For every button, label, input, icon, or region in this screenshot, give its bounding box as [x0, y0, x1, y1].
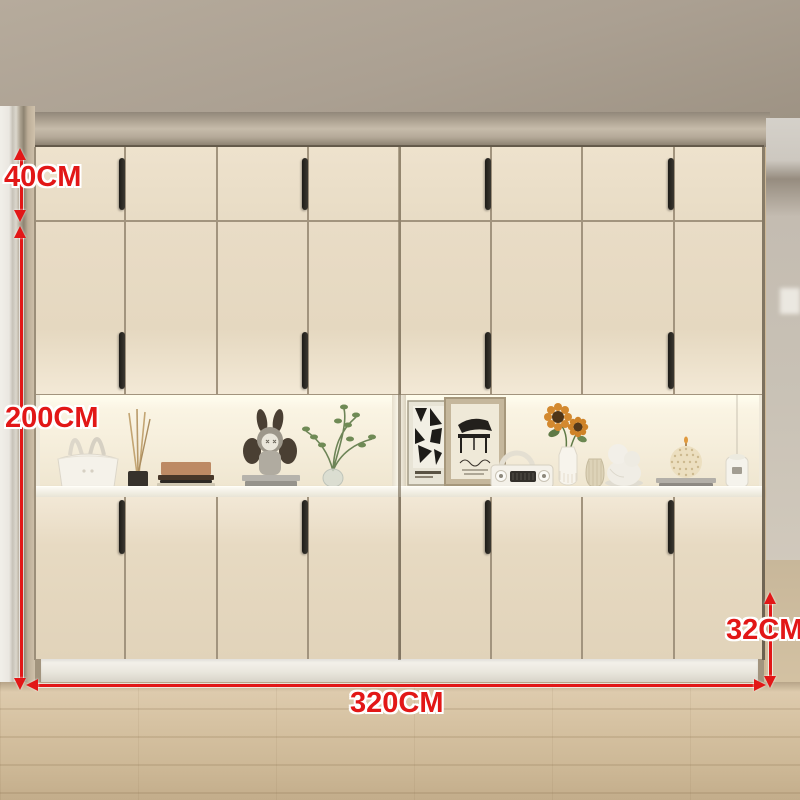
wardrobe-door — [583, 222, 672, 394]
abstract-poster — [408, 401, 449, 485]
door-handle-icon — [668, 158, 674, 210]
center-seam — [398, 147, 401, 660]
wardrobe-door — [401, 222, 490, 394]
plinth-base — [41, 659, 758, 682]
dim-line-200cm — [20, 236, 23, 680]
door-handle-icon — [119, 332, 125, 389]
arrow-down-icon — [14, 678, 26, 690]
hallway-light — [780, 288, 800, 314]
wardrobe-door — [309, 147, 398, 220]
wardrobe-door — [492, 222, 581, 394]
wardrobe-door — [35, 497, 124, 659]
reed-diffuser — [128, 409, 150, 487]
arrow-up-icon — [14, 226, 26, 238]
wardrobe-door — [309, 222, 398, 394]
door-handle-icon — [302, 500, 308, 554]
ceiling — [0, 0, 800, 118]
wardrobe-door — [126, 222, 215, 394]
wardrobe-door — [401, 147, 490, 220]
striped-vase — [586, 459, 604, 487]
door-handle-icon — [485, 332, 491, 389]
wardrobe-door — [309, 497, 398, 659]
door-handle-icon — [668, 332, 674, 389]
ceramic-jar — [726, 395, 748, 487]
arrow-down-icon — [764, 676, 776, 688]
door-handle-icon — [302, 158, 308, 210]
wardrobe-door — [492, 497, 581, 659]
wardrobe-door — [675, 147, 764, 220]
door-handle-icon — [485, 500, 491, 554]
dim-label-200cm: 200CM — [5, 404, 99, 433]
wardrobe-door — [218, 222, 307, 394]
wardrobe-door — [583, 497, 672, 659]
hallway-wall — [766, 118, 800, 588]
wardrobe-door — [675, 222, 764, 394]
dim-label-40cm: 40CM — [4, 163, 81, 192]
left-door-frame — [0, 106, 35, 690]
arrow-left-icon — [26, 679, 38, 691]
cherub-figurine — [605, 444, 643, 487]
wardrobe-door — [35, 222, 124, 394]
dim-label-320cm: 320CM — [350, 689, 444, 718]
dim-label-32cm: 32CM — [726, 616, 800, 645]
wardrobe-door — [126, 147, 215, 220]
arrow-down-icon — [14, 210, 26, 222]
wardrobe-cabinet — [35, 147, 764, 682]
bunny-figurine — [242, 408, 300, 487]
plant-in-vase — [302, 405, 376, 488]
door-handle-icon — [302, 332, 308, 389]
wardrobe-door — [401, 497, 490, 659]
sphere-candle — [656, 437, 716, 488]
wardrobe-product-scene: 40CM 200CM 320CM 32CM — [0, 0, 800, 800]
door-handle-icon — [119, 158, 125, 210]
wardrobe-door — [583, 147, 672, 220]
cabinet-right-edge — [762, 147, 765, 660]
door-handle-icon — [485, 158, 491, 210]
handbag — [58, 439, 118, 487]
crown-molding — [0, 112, 770, 147]
arrow-up-icon — [14, 148, 26, 160]
book-stack — [157, 462, 215, 487]
wardrobe-door — [218, 497, 307, 659]
wardrobe-door — [218, 147, 307, 220]
wardrobe-door — [492, 147, 581, 220]
door-handle-icon — [668, 500, 674, 554]
wardrobe-door — [126, 497, 215, 659]
open-shelf-right — [406, 395, 759, 487]
arrow-up-icon — [764, 592, 776, 604]
door-handle-icon — [119, 500, 125, 554]
